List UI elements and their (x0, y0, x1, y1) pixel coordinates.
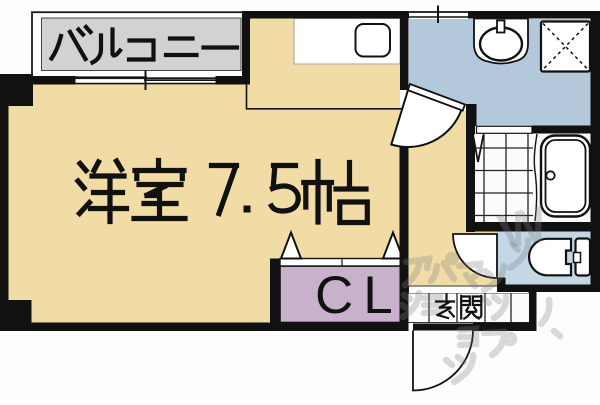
svg-text:CL: CL (315, 266, 403, 325)
